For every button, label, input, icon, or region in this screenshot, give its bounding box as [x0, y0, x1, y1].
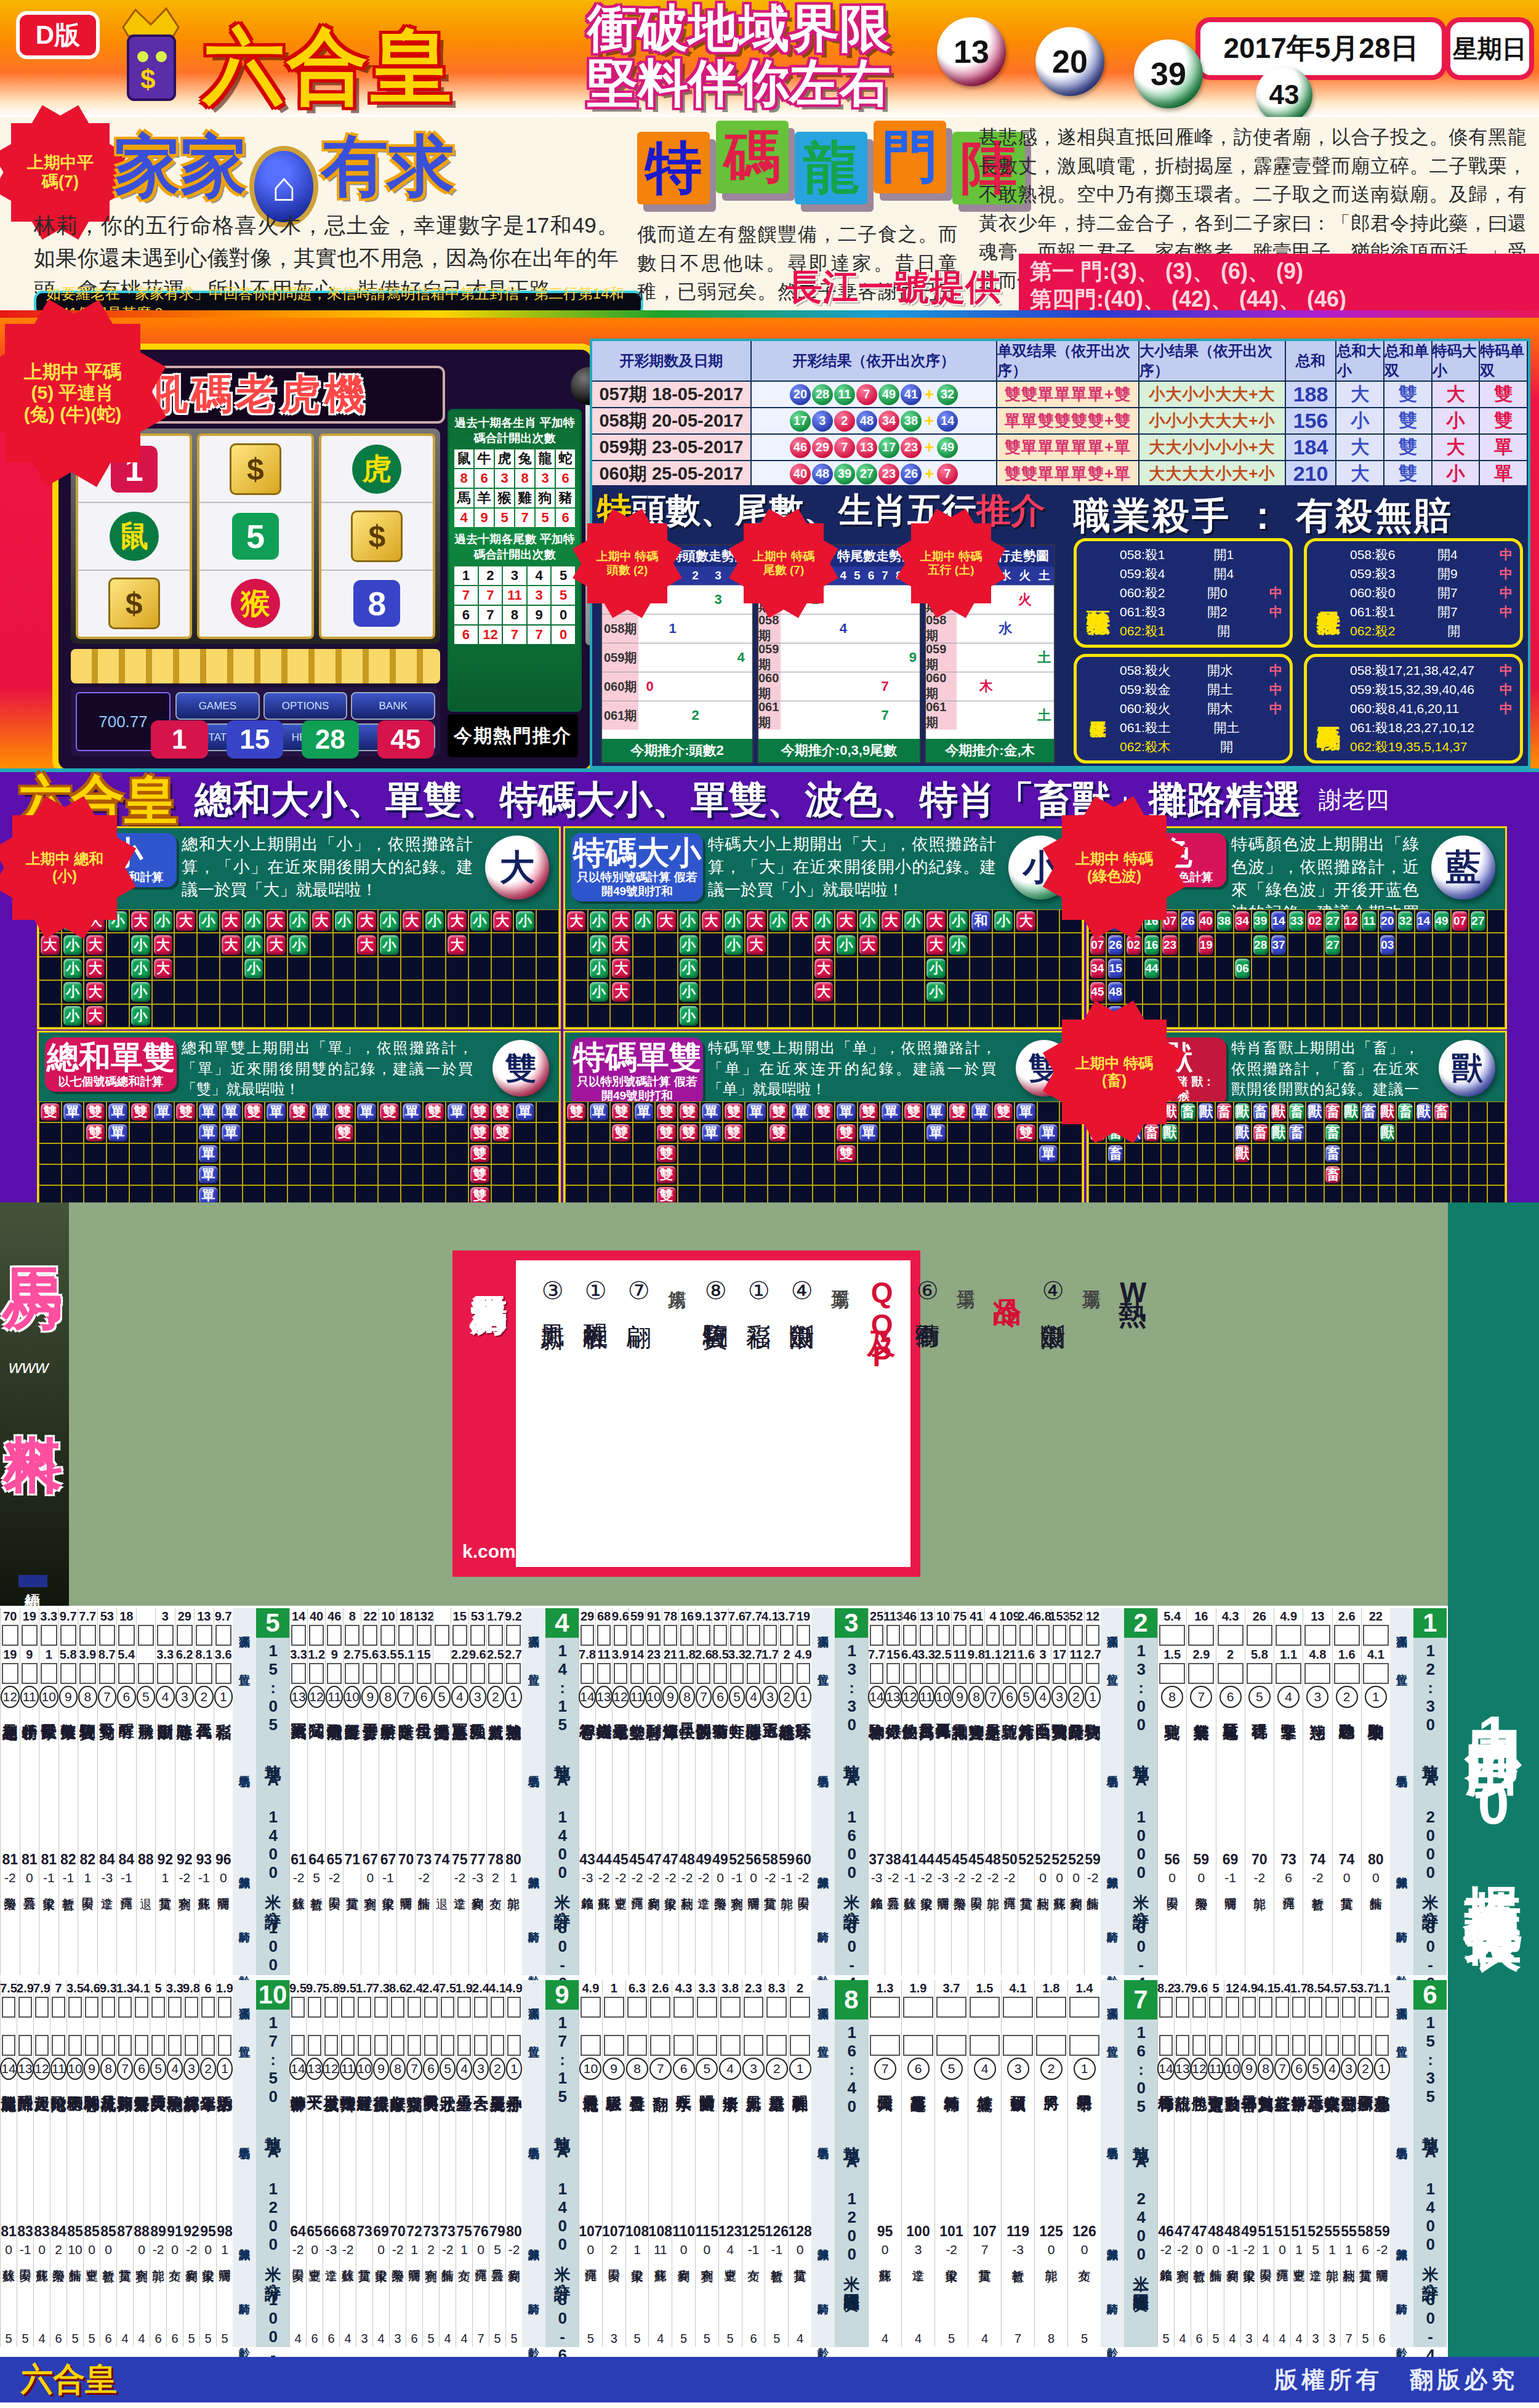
grid-cell	[588, 1164, 611, 1185]
horse-age	[613, 1958, 629, 1975]
bet-box-place	[117, 2034, 133, 2056]
horse-number-circle: 2	[766, 2058, 788, 2080]
trend-cell	[684, 643, 707, 672]
date-box: 2017年5月28日	[1195, 17, 1447, 80]
trend-cell	[864, 672, 878, 701]
horse-number: 8	[626, 2056, 649, 2081]
grid-tile: 20	[1380, 911, 1395, 931]
jockey: 何澤堯	[629, 1887, 645, 1958]
trend-cell	[850, 643, 864, 672]
jockey: 史卓豐	[719, 2258, 742, 2330]
bet-box	[218, 2035, 231, 2056]
trend-cell	[1015, 701, 1035, 730]
grid-tile: 小	[680, 935, 698, 955]
horse-number-circle: 8	[679, 1686, 695, 1708]
jockey: 祈普敦	[100, 2258, 116, 2330]
rating-adjustment: -1	[59, 1869, 78, 1887]
grid-cell	[565, 957, 588, 980]
rating-adjustment: 0	[167, 2241, 183, 2258]
grid-row: 畜獸畜	[1088, 1143, 1505, 1164]
bet-box	[1276, 2035, 1289, 2056]
trend-cell	[864, 643, 878, 672]
horse-column: 1.91活力小駒981潘明輝5	[216, 1980, 233, 2347]
grid-cell	[1179, 1122, 1197, 1143]
grid-tile: 獸	[1235, 1124, 1250, 1142]
grid-cell: 28	[1252, 933, 1269, 956]
grid-cell	[39, 1004, 62, 1028]
jockey: 杜利萊	[679, 1887, 695, 1958]
horse-name: 常拼常勝	[1291, 2081, 1307, 2221]
zodiac-name: 鼠	[454, 449, 473, 468]
bet-box-win	[456, 1996, 472, 2018]
bet-box-win	[1245, 1624, 1274, 1646]
grid-tile: 雙	[470, 1187, 489, 1204]
bet-box	[1086, 1625, 1099, 1646]
horse-rating: 123	[719, 2221, 742, 2241]
row-labels: 獨贏位置馬號馬名評分加減騎師齡	[1390, 1608, 1413, 1975]
grid-cell: 畜	[1396, 1101, 1414, 1122]
grid-cell	[1197, 957, 1215, 980]
bet-box	[747, 1663, 760, 1684]
bet-box	[970, 1663, 983, 1684]
rating-adjustment: 0	[579, 2241, 602, 2258]
rating-adjustment: -2	[175, 1869, 195, 1887]
jockey: 布文	[1068, 2258, 1101, 2330]
bet-box-win	[762, 1624, 778, 1646]
grid-tile: 15	[1108, 959, 1123, 978]
bet-box	[1276, 1997, 1289, 2018]
horse-number: 8	[1158, 1685, 1186, 1709]
horse-number-circle: 10	[356, 2058, 372, 2080]
grid-tile: 27	[1325, 911, 1340, 931]
grid-cell	[1342, 1122, 1360, 1143]
win-odds: 9.5	[290, 1980, 306, 1996]
grid-row: 雙單單單雙雙雙	[39, 1122, 559, 1143]
grid-row: 大小大小大大小大小大小大	[39, 933, 559, 956]
grid-tile: 小	[380, 935, 399, 955]
grid-cell	[1269, 1143, 1287, 1164]
header-ball: 43	[1256, 66, 1312, 123]
grid-cell	[1179, 1143, 1197, 1164]
bet-box-win	[1216, 1624, 1245, 1646]
grid-cell	[174, 957, 197, 980]
row-label: 馬號馬名	[1101, 1685, 1124, 1850]
trend-cell	[906, 701, 920, 730]
horse-number: 4	[745, 1685, 761, 1709]
grid-cell: 畜	[1252, 1122, 1269, 1143]
horse-rating: 100	[902, 2221, 934, 2241]
grid-cell: 雙	[174, 1101, 197, 1122]
place-odds: 4.1	[1362, 1646, 1390, 1662]
jockey: 吳嘉晉	[20, 1887, 39, 1958]
rating-adjustment: 2	[487, 1869, 504, 1887]
grid-tile: 小	[244, 959, 263, 978]
bet-box	[697, 2035, 717, 2056]
horse-column: 4.99善傳千里49-2梁家俊3	[1240, 1980, 1257, 2347]
slot-badge: 上期中 平碼(5) 平連肖(兔) (牛)(蛇)	[5, 324, 140, 462]
pick-panel: 總和單雙以七個號碼總和計算總和單雙上期開出「單」，依照攤路計，「單」近來開後開雙…	[37, 1031, 561, 1208]
horse-name: 川河尊駒	[117, 2081, 133, 2221]
draw-ball: 13	[856, 437, 877, 458]
bet-box	[1188, 1625, 1214, 1646]
horse-age	[137, 1958, 156, 1975]
horse-age	[596, 1958, 612, 1975]
grid-cell: 小	[287, 909, 310, 933]
horse-rating: 61	[290, 1850, 307, 1869]
tail-count: 6	[454, 626, 478, 644]
grid-tile: 大	[612, 982, 630, 1002]
trend-col-label: 4	[837, 566, 851, 585]
family-badge: 上期中平碼(7)	[11, 123, 110, 222]
horse-number: 6	[416, 1685, 433, 1709]
win-odds: 2	[789, 1980, 811, 1996]
horse-number: 1	[506, 2056, 522, 2081]
horse-age	[885, 1958, 901, 1975]
place-odds: 5.4	[117, 1646, 136, 1662]
grid-cell	[1469, 980, 1487, 1004]
rating-adjustment: -3	[1002, 2241, 1034, 2258]
grid-tile: 小	[635, 911, 653, 931]
bet-box	[920, 1625, 933, 1646]
horse-age: 3	[1324, 2330, 1340, 2347]
horse-number: 2	[779, 1685, 795, 1709]
place-odds	[137, 1646, 156, 1662]
results-table: 开彩期数及日期开彩结果（依开出次序）单双结果（依开出次序）大小结果（依开出次序）…	[590, 339, 1530, 486]
rating-adjustment: 4	[719, 2241, 742, 2258]
place-odds: 5.6	[361, 1646, 379, 1662]
grid-cell	[333, 1143, 356, 1164]
rating-adjustment: 0	[696, 2241, 718, 2258]
jockey: 郭能	[1035, 2258, 1067, 2330]
horse-rating: 73	[1274, 1850, 1303, 1869]
place-odds: 1.5	[1158, 1646, 1186, 1662]
grid-cell	[970, 1143, 992, 1164]
rating-adjustment: -2	[762, 1869, 778, 1887]
horse-age: 4	[1291, 2330, 1307, 2347]
bet-box	[647, 1625, 661, 1646]
grid-cell	[835, 980, 858, 1004]
grid-tile: 單	[267, 1103, 286, 1121]
killer-line: 058:殺6開4中	[1346, 546, 1516, 563]
grid-cell	[723, 1004, 745, 1028]
win-odds: 1.7	[356, 1980, 372, 1996]
race-info: 13:00 草地 A 1000米 評分:60-40 第四班	[1124, 1638, 1157, 2029]
killer-box: 殺特尾數058:殺6開4中059:殺3開9中060:殺0開7中061:殺1開7中…	[1304, 538, 1523, 648]
killer-section: 職業殺手 ： 有殺無賠 殺特頭數058:殺1開1 059:殺4開4 060:殺2…	[1067, 485, 1528, 766]
horse-rating: 52	[1051, 1850, 1067, 1869]
zodiac-grid: 鼠牛虎兔龍蛇863836馬羊猴雞狗豬495756	[454, 449, 575, 527]
place-odds: 15	[885, 1646, 901, 1662]
horse-age	[795, 1958, 811, 1975]
jockey: 蘇兆輝	[195, 1887, 214, 1958]
bet-box	[627, 1997, 648, 2018]
horse-column: 7.912大運起830蘇兆輝4	[33, 1980, 50, 2347]
horse-column: 257.714赤水神駒37-3賴維銘	[868, 1608, 885, 1975]
grid-tile: 16	[1144, 935, 1159, 955]
grid-cell	[1143, 1164, 1160, 1185]
zodiac-count: 8	[454, 469, 473, 488]
grid-tile: 畜	[1434, 1103, 1449, 1121]
bet-box	[291, 2035, 305, 2056]
grid-cell	[1269, 980, 1287, 1004]
grid-cell	[287, 1143, 310, 1164]
zodiac-name: 羊	[475, 489, 494, 507]
horse-rating: 85	[100, 2221, 116, 2241]
horse-rating: 45	[629, 1850, 645, 1869]
odd-even-result: 雙單單單單單+單	[997, 435, 1139, 460]
horse-column: 711陀飛輪842黎海榮6	[50, 1980, 66, 2347]
horse-name: 牛精叻仔	[20, 1709, 39, 1850]
grid-cell: 雙	[678, 1101, 701, 1122]
horse-age	[745, 1958, 761, 1975]
horse-number-circle: 2	[1336, 1686, 1358, 1708]
horse-number-circle: 6	[117, 1686, 136, 1708]
grid-cell: 小	[378, 909, 401, 933]
trend-cell	[822, 643, 837, 672]
bet-box	[68, 1997, 82, 2018]
grid-tile: 獸	[1380, 1103, 1395, 1121]
rating-adjustment: 0	[672, 2241, 695, 2258]
horse-column: 9.514中游神箭64-2田泰安4	[289, 1980, 306, 2347]
grid-cell	[1234, 1164, 1252, 1185]
horse-number-circle: 2	[200, 2058, 216, 2080]
killer-lines: 058:殺火開水中059:殺金開土中060:殺火開木中061:殺土開土 062:…	[1116, 661, 1286, 757]
win-odds: 3.3	[39, 1608, 58, 1624]
grid-tile: 雙	[567, 1103, 585, 1121]
trend-cell	[1015, 614, 1035, 643]
jockey: 杜利萊	[1341, 2258, 1357, 2330]
grid-cell	[1451, 1004, 1469, 1028]
tail-count: 0	[552, 626, 575, 644]
trend-cell: 水	[995, 614, 1015, 643]
grid-row: 雙雙雙單雙雙雙單單雙單	[565, 1122, 1082, 1143]
trend-cell	[808, 643, 822, 672]
grid-cell	[723, 980, 745, 1004]
horse-number-circle: 12	[1191, 2058, 1207, 2080]
grid-cell	[468, 980, 491, 1004]
bet-box	[1334, 1663, 1360, 1684]
bet-box-place	[416, 1662, 433, 1685]
grid-cell: 大	[84, 933, 106, 956]
horse-name: 美麗皇者	[489, 2081, 505, 2221]
tips-card-body: 熱W第五場④劍斷浪冷品第三場⑥有衝勁Q及QP第五場④劍斷浪①彩福⑧恆駿寶駒第八場…	[516, 1260, 1167, 1567]
bet-box-place	[1002, 2034, 1034, 2056]
kill-value: 061:殺18,23,27,10,12	[1350, 719, 1474, 736]
jockey: 莫雷拉	[117, 2258, 133, 2330]
zodiac-name: 兔	[515, 449, 534, 468]
horse-age	[918, 1958, 934, 1975]
jockey: 潘明輝	[397, 1887, 414, 1958]
grid-cell: 大	[1015, 909, 1037, 933]
draw-ball: 17	[878, 437, 899, 458]
grid-cell	[790, 1143, 813, 1164]
horse-column: 1.82將男1250郭能8	[1034, 1980, 1067, 2347]
results-col-header: 开彩结果（依开出次序）	[752, 341, 997, 381]
grid-cell	[970, 933, 992, 956]
grid-tile: 畜	[1181, 1103, 1195, 1121]
family-title-post: 有求	[321, 129, 454, 203]
bet-box	[1259, 2035, 1272, 2056]
jockey: 莫雷拉	[1357, 2258, 1373, 2330]
horse-number-circle: 13	[595, 1686, 612, 1708]
grid-cell: 小	[152, 909, 175, 933]
grid-cell	[106, 1143, 129, 1164]
win-odds: 37	[712, 1608, 728, 1624]
bet-box	[903, 1625, 917, 1646]
bet-box-win	[117, 1624, 136, 1646]
rating-adjustment: -2	[952, 1869, 968, 1887]
place-odds: 5.1	[397, 1646, 414, 1662]
bet-box	[309, 1625, 324, 1646]
trend-row-label: 059期	[602, 643, 638, 672]
horse-column: 8.214青梅竹馬46-2賴維銘5	[1157, 1980, 1174, 2347]
horse-number-circle: 6	[1220, 1686, 1242, 1708]
horse-rating: 77	[469, 1850, 486, 1869]
tip-column: ⑥有衝勁	[909, 1276, 946, 1551]
bet-box	[18, 1997, 32, 2018]
grid-tile: 雙	[904, 1103, 923, 1121]
row-label: 位置	[1101, 2018, 1124, 2056]
bet-box-place	[719, 2034, 742, 2056]
bet-box-win	[506, 1996, 522, 2018]
horse-column: 5.41.58馳寶560田泰安	[1157, 1608, 1186, 1975]
killer-line: 059:殺3開9中	[1346, 565, 1516, 582]
horse-name: 中游新星	[379, 1709, 396, 1850]
horse-column: 4.16乘勢好運880李寶利4	[133, 1980, 150, 2347]
horse-rating: 71	[344, 1850, 361, 1869]
grid-tile: 小	[904, 911, 923, 931]
bet-box-win	[795, 1624, 811, 1646]
grid-cell	[1451, 1143, 1469, 1164]
horse-name: 日威夜威	[323, 2081, 339, 2221]
trend-cell	[638, 701, 661, 730]
grid-cell	[880, 1164, 902, 1185]
open-value: 開9	[1437, 565, 1458, 582]
grid-cell	[1215, 1143, 1233, 1164]
zodiac-name: 虎	[495, 449, 514, 468]
grid-tile: 27	[1471, 911, 1485, 931]
rating-adjustment: 0	[789, 2241, 811, 2258]
grid-cell: 畜	[1360, 1101, 1378, 1122]
horse-rating: 108	[626, 2221, 649, 2241]
grid-cell	[790, 980, 813, 1004]
horse-name: 翔惑	[1303, 1709, 1332, 1850]
grid-cell: 小	[513, 909, 536, 933]
grid-cell	[106, 980, 129, 1004]
bet-box-win	[603, 1996, 625, 2018]
horse-column: 3.75精氣神101-2梁家俊5	[934, 1980, 968, 2347]
horse-column: 4.69開心神駒850史卓豐5	[83, 1980, 100, 2347]
row-label: 評分加減	[522, 1850, 545, 1887]
grid-row: 雙雙單	[565, 1143, 1082, 1164]
results-col-header: 总和大小	[1336, 341, 1384, 381]
jockey: 祈普敦	[59, 1887, 78, 1958]
horse-number-circle: 11	[629, 1686, 645, 1708]
horse-number-circle: 12	[612, 1686, 629, 1708]
grid-tile: 03	[1380, 935, 1395, 955]
grid-tile: 小	[949, 935, 968, 955]
trend-cell	[837, 643, 851, 672]
horse-rating: 72	[406, 2221, 422, 2241]
plus-sign: +	[925, 411, 934, 430]
grid-cell: 03	[1378, 933, 1396, 956]
win-odds: 1.5	[968, 1980, 1001, 1996]
dragon-title-char: 龍	[795, 132, 867, 204]
horse-age	[1035, 1958, 1051, 1975]
horse-rating: 73	[423, 2221, 439, 2241]
horse-column: 103.58中游新星67-1梁家俊	[379, 1608, 396, 1975]
grid-tile: 小	[131, 935, 150, 955]
bet-box-place	[344, 1662, 361, 1685]
horse-number: 13	[307, 2056, 323, 2081]
win-odds: 52	[1068, 1608, 1084, 1624]
grid-cell	[1252, 980, 1269, 1004]
bet-box-win	[649, 1996, 672, 2018]
race-block: 297.814智有心得43-3賴維銘681113搖錢樹44-2蘇兆輝9.63.9…	[579, 1608, 868, 1975]
bet-box-place	[17, 2034, 33, 2056]
bet-box	[1003, 1997, 1032, 2018]
slogan-line1: 衝破地域界限	[542, 1, 936, 56]
place-odds: 14	[629, 1646, 645, 1662]
win-odds: 4.9	[506, 1980, 522, 1996]
place-odds: 2.2	[451, 1646, 468, 1662]
horse-rating: 88	[134, 2221, 150, 2241]
jockey: 莫雷拉	[968, 2258, 1001, 2330]
hot-ball: 45	[377, 720, 435, 759]
grid-cell	[970, 1004, 992, 1028]
trend-cell	[850, 586, 864, 614]
grid-cell: 單	[1037, 1122, 1060, 1143]
grid-cell: 大	[401, 909, 424, 933]
grid-cell	[287, 957, 310, 980]
trend-row: 058期4	[758, 614, 920, 643]
horse-age	[1245, 1958, 1274, 1975]
grid-cell	[1106, 1164, 1124, 1185]
place-odds: 11	[952, 1646, 968, 1662]
kill-value: 061:殺土	[1120, 719, 1171, 736]
horse-age: 5	[183, 2330, 199, 2347]
horse-age	[1216, 1958, 1245, 1975]
grid-tile: 單	[590, 1103, 608, 1121]
bet-box	[1069, 1663, 1083, 1684]
jockey: 黎海榮	[1187, 1887, 1215, 1958]
grid-cell: 小	[633, 909, 656, 933]
grid-tile: 小	[680, 911, 698, 931]
grid-cell	[1360, 933, 1378, 956]
bet-box-win	[579, 1996, 602, 2018]
plus-sign: +	[925, 464, 934, 483]
grid-tile: 49	[1434, 911, 1449, 931]
horse-rating: 74	[1303, 1850, 1332, 1869]
row-label: 評分加減	[233, 1850, 256, 1887]
bet-box	[1242, 2035, 1256, 2056]
bet-box	[452, 1625, 467, 1646]
horse-age: 5	[200, 2330, 216, 2347]
grid-tile: 單	[63, 1103, 82, 1121]
pick-panel-text: 特碼大小上期開出「大」，依照攤路計算，「大」在近來開後開小的紀錄。建議一於買「小…	[708, 833, 996, 901]
horse-number: 10	[39, 1685, 58, 1709]
rating-adjustment: 0	[712, 1869, 728, 1887]
place-odds: 3	[1035, 1646, 1051, 1662]
win-odds: 109	[1002, 1608, 1018, 1624]
horse-age	[20, 1958, 39, 1975]
zodiac-name: 龍	[536, 449, 555, 468]
grid-tile: 小	[769, 911, 788, 931]
grid-tile: 單	[516, 1103, 535, 1121]
bet-box-place	[451, 1662, 468, 1685]
grid-cell: 大	[610, 909, 633, 933]
trend-cell	[781, 672, 795, 701]
